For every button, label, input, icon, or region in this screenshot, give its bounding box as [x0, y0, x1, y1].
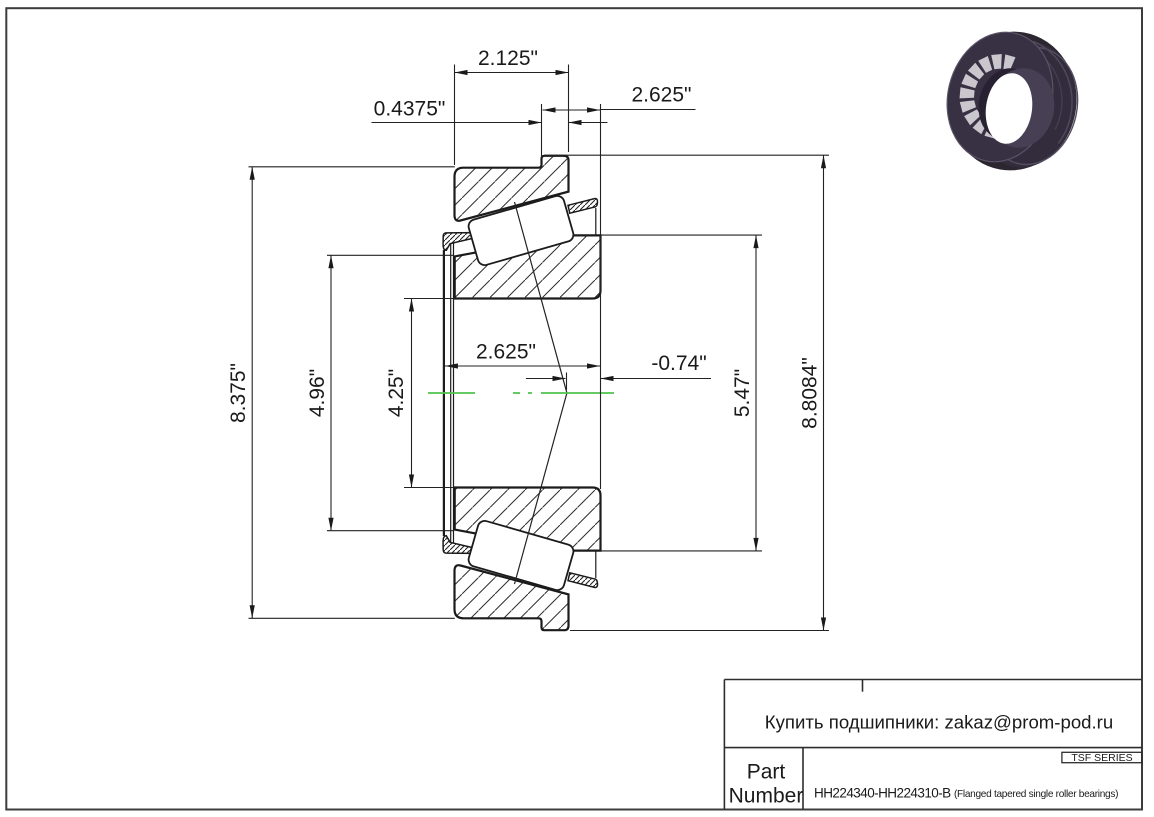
svg-text:0.4375": 0.4375"	[374, 98, 446, 121]
svg-text:(Flanged tapered single roller: (Flanged tapered single roller bearings)	[954, 789, 1118, 800]
svg-text:4.96": 4.96"	[306, 369, 329, 417]
svg-text:2.625": 2.625"	[476, 341, 536, 364]
svg-text:Number: Number	[729, 785, 804, 808]
svg-text:8.8084": 8.8084"	[799, 357, 822, 429]
svg-text:HH224340-HH224310-B: HH224340-HH224310-B	[814, 786, 951, 801]
svg-text:2.125": 2.125"	[478, 47, 538, 70]
svg-text:Part: Part	[747, 761, 786, 784]
svg-text:2.625": 2.625"	[631, 84, 691, 107]
svg-text:4.25": 4.25"	[385, 369, 408, 417]
svg-text:-0.74": -0.74"	[651, 352, 706, 375]
svg-text:Купить подшипники: zakaz@prom-: Купить подшипники: zakaz@prom-pod.ru	[765, 712, 1113, 733]
svg-text:5.47": 5.47"	[731, 369, 754, 417]
svg-text:TSF SERIES: TSF SERIES	[1071, 752, 1132, 764]
svg-text:8.375": 8.375"	[227, 363, 250, 423]
